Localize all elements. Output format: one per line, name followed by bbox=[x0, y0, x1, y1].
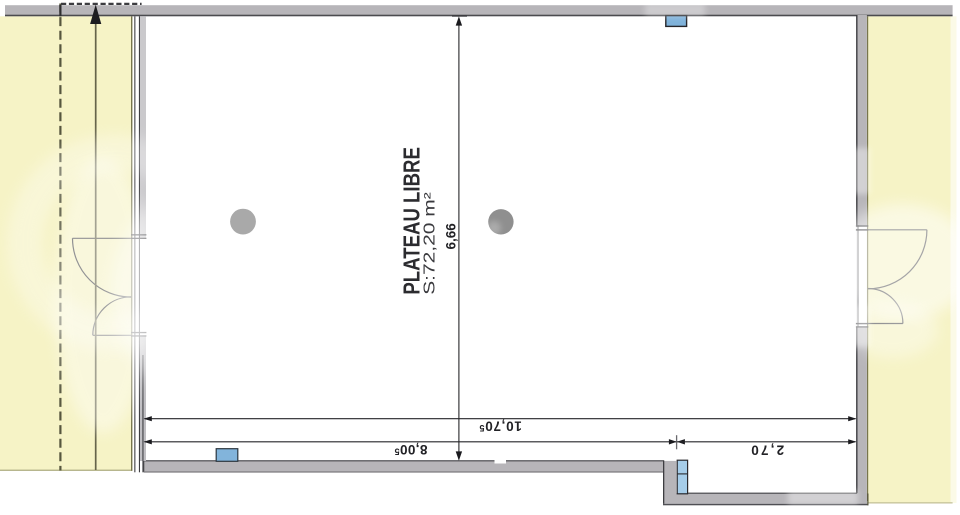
svg-text:S:72,20 m²: S:72,20 m² bbox=[421, 192, 438, 295]
svg-text:10,705: 10,705 bbox=[479, 419, 522, 434]
svg-text:6,66: 6,66 bbox=[443, 223, 458, 250]
svg-text:2,70: 2,70 bbox=[749, 442, 784, 457]
